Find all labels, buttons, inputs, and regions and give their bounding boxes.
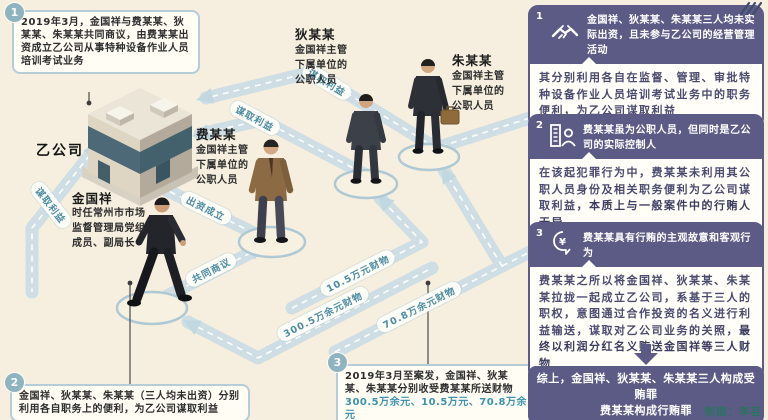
company-label: 乙公司: [36, 140, 84, 160]
callout-2-text: 金国祥、狄某某、朱某某（三人均未出资）分别利用各自职务上的便利，为乙公司谋取利益: [19, 391, 240, 415]
analysis-panel: 1 金国祥、狄某某、朱某某三人均未实际出资，且未参与乙公司的经营管理活动 其分别…: [526, 0, 766, 420]
analysis-box-1-body-text: 其分别利用各自在监督、管理、审批特种设备作业人员培训考试业务中的职务便利，为乙公…: [539, 71, 752, 117]
callout-1-badge: 1: [4, 2, 25, 23]
person-di-name: 狄某某: [295, 24, 336, 43]
callout-3-amounts: 300.5万余元、10.5万元、70.8万余元: [345, 397, 527, 420]
analysis-box-3-header: 3 ¥ 费某某具有行贿的主观故意和客观行为: [530, 224, 762, 267]
person-di-desc: 金国祥主管下属单位的公职人员: [295, 43, 355, 88]
company-controller-icon: [549, 122, 577, 153]
callout-2-badge: 2: [4, 372, 25, 393]
analysis-box-2: 2 费某某虽为公职人员，但同时是乙公司的实际控制人 在该起犯罪行为中，费某某未利…: [528, 114, 764, 239]
callout-3-text: 2019年3月至案发，金国祥、狄某某、朱某某分别收受费某某所送财物: [345, 371, 513, 395]
person-fei-name: 费某某: [196, 124, 237, 143]
analysis-box-1-header-text: 金国祥、狄某某、朱某某三人均未实际出资，且未参与乙公司的经营管理活动: [587, 13, 755, 58]
person-jin-desc: 时任常州市市场监督管理局党组成员、副局长: [72, 206, 154, 251]
analysis-box-2-header: 2 费某某虽为公职人员，但同时是乙公司的实际控制人: [530, 116, 762, 159]
conclusion-line-1: 综上，金国祥、狄某某、朱某某三人构成受贿罪: [532, 371, 760, 403]
conclusion-arrow-icon: [526, 344, 766, 365]
person-fei-desc: 金国祥主管下属单位的公职人员: [196, 143, 256, 188]
handshake-icon: [549, 21, 581, 50]
pen-scribble-icon: [738, 1, 766, 20]
analysis-box-1-number: 1: [536, 9, 543, 24]
callout-1: 2019年3月，金国祥与费某某、狄某某、朱某某共同商议，由费某某出资成立乙公司从…: [12, 10, 200, 74]
analysis-box-3-header-text: 费某某具有行贿的主观故意和客观行为: [583, 231, 755, 261]
callout-3: 2019年3月至案发，金国祥、狄某某、朱某某分别收受费某某所送财物300.5万余…: [336, 364, 538, 420]
credit-text: 制图：李芸: [705, 404, 763, 419]
analysis-box-2-number: 2: [536, 118, 543, 133]
person-zhu-desc: 金国祥主管下属单位的公职人员: [452, 69, 512, 114]
analysis-box-3-body-text: 费某某之所以将金国祥、狄某某、朱某某拉拢一起成立乙公司，系基于三人的职权，意图通…: [539, 274, 752, 337]
analysis-box-3-number: 3: [536, 226, 543, 241]
svg-text:¥: ¥: [559, 237, 566, 248]
callout-1-text: 2019年3月，金国祥与费某某、狄某某、朱某某共同商议，由费某某出资成立乙公司从…: [21, 17, 189, 67]
bribe-intent-icon: ¥: [549, 230, 577, 261]
infographic-canvas: 谋取利益 谋取利益 谋取利益 出资成立 共同商议 300.5万余元财物 10.5…: [0, 0, 768, 420]
person-zhu-name: 朱某某: [452, 50, 493, 69]
analysis-box-1: 1 金国祥、狄某某、朱某某三人均未实际出资，且未参与乙公司的经营管理活动 其分别…: [528, 5, 764, 128]
analysis-box-2-header-text: 费某某虽为公职人员，但同时是乙公司的实际控制人: [583, 123, 755, 153]
callout-3-badge: 3: [327, 352, 348, 373]
callout-2: 金国祥、狄某某、朱某某（三人均未出资）分别利用各自职务上的便利，为乙公司谋取利益: [10, 384, 250, 420]
analysis-box-1-header: 1 金国祥、狄某某、朱某某三人均未实际出资，且未参与乙公司的经营管理活动: [530, 7, 762, 64]
person-jin-name: 金国祥: [72, 188, 113, 207]
